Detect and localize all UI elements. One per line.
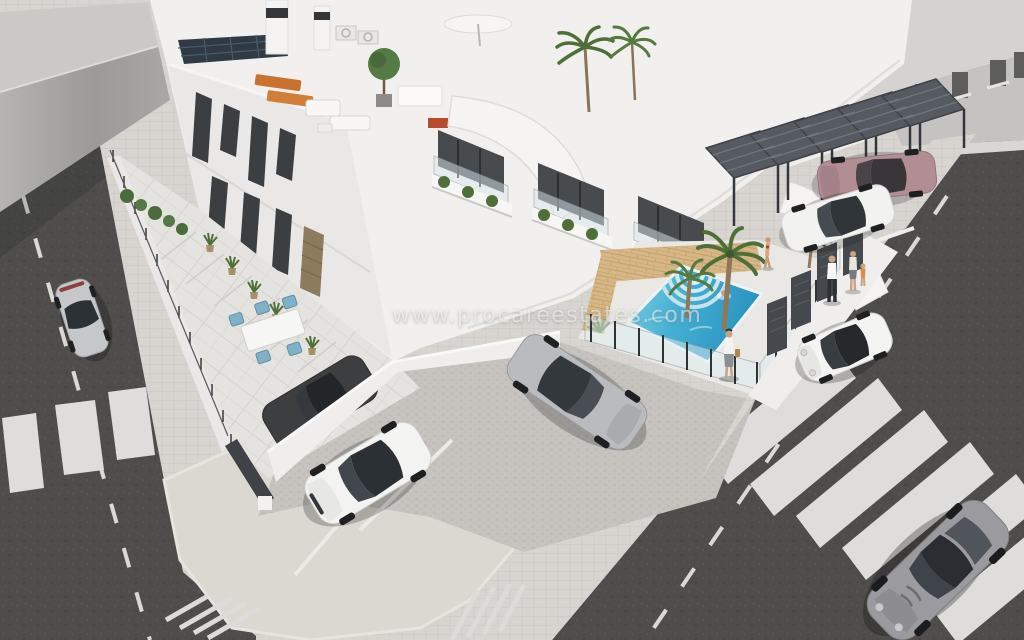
wall-pillar xyxy=(258,496,272,510)
watermark: www.procareestates.com xyxy=(392,303,702,328)
render-canvas: www.procareestates.com xyxy=(0,0,1024,640)
timber-door xyxy=(300,226,324,297)
roof-counter xyxy=(398,86,442,106)
bbq-table xyxy=(428,118,448,128)
